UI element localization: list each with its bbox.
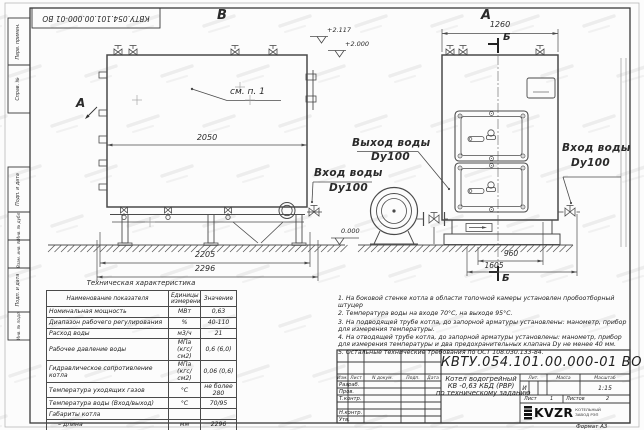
cell: Номинальная мощность [47, 307, 169, 318]
kvzr-sub-line2: ЗАВОД РЭП [575, 413, 601, 418]
technical-notes: 1. На боковой стенке котла в области топ… [338, 295, 634, 358]
note-text: На подводящей трубе котла, до запорной а… [338, 319, 626, 333]
cell: Габариты котла [47, 409, 169, 420]
inlet-water-label-right: Вход воды [562, 143, 631, 154]
tb-sheets-value: 2 [606, 396, 609, 402]
col-header-name: Наименование показателя [47, 291, 169, 307]
table-row: Диапазон рабочего регулирования%40-110 [47, 317, 237, 328]
note-number: 4. [338, 334, 344, 341]
dim-1605: 1605 [466, 262, 522, 270]
margin-stamp-podp-data-1: Подп. и дата [8, 167, 30, 212]
table-row: – длинамм2296 [47, 419, 237, 430]
cell: °С [169, 398, 201, 409]
tech-characteristics-table: Наименование показателя Единицы измерени… [46, 290, 237, 430]
cell: Диапазон рабочего регулирования [47, 317, 169, 328]
cell: мм [169, 419, 201, 430]
cell: Температура уходящих газов [47, 383, 169, 398]
cell: 0,63 [201, 307, 237, 318]
section-mark-B-top: Б [503, 33, 511, 44]
note-text: На боковой стенке котла в области топочн… [338, 295, 614, 309]
cell [201, 409, 237, 420]
cell: не более 280 [201, 383, 237, 398]
tb-header-podp: Подп. [401, 376, 425, 381]
cell: 70/95 [201, 398, 237, 409]
cell: 2296 [201, 419, 237, 430]
kvzr-logo-text: KVZR [534, 405, 573, 420]
dim-2050: 2050 [182, 134, 232, 142]
tb-sheets-label: Листов [566, 396, 585, 402]
note-item: 1. На боковой стенке котла в области топ… [338, 295, 634, 309]
tb-sheet-value: 1 [550, 396, 553, 402]
cell: 0,06 (0,6) [201, 361, 237, 383]
dim-2205: 2205 [183, 251, 227, 259]
cell: МПа (кгс/см2) [169, 361, 201, 383]
table-row: Расход водым3/ч21 [47, 328, 237, 339]
note-text: На отводящей трубе котла, до запорной ар… [338, 334, 622, 348]
cell: Рабочее давление воды [47, 339, 169, 361]
inlet-water-label-left: Вход воды [314, 168, 383, 179]
cell: 21 [201, 328, 237, 339]
tb-header-massa: Масса [547, 376, 580, 381]
document-number: КВТУ.054.101.00.000-01 ВО [441, 355, 630, 370]
kvzr-logo-subtitle: КОТЕЛЬНЫЙ ЗАВОД РЭП [575, 408, 601, 417]
section-mark-B-bottom: Б [502, 274, 510, 285]
tb-lit-value: И [520, 385, 529, 392]
note-number: 1. [338, 295, 344, 302]
col-header-value: Значение [201, 291, 237, 307]
note-item: 4. На отводящей трубе котла, до запорной… [338, 334, 634, 348]
margin-stamp-podp-data-2: Подп. и дата [8, 268, 30, 312]
format-label: Формат А3 [576, 424, 607, 430]
dim-2296: 2296 [183, 265, 227, 273]
table-row: Габариты котла [47, 409, 237, 420]
tb-header-lit: Лит. [520, 376, 547, 381]
note-number: 2. [338, 310, 344, 317]
cell: 40-110 [201, 317, 237, 328]
cell: МПа (кгс/см2) [169, 339, 201, 361]
col-header-units: Единицы измерения [169, 291, 201, 307]
note-number: 3. [338, 319, 344, 326]
tb-staff-prov: Пров. [339, 389, 354, 395]
callout-see-item-1: см. п. 1 [230, 88, 265, 97]
elevation-zero: 0.000 [341, 228, 360, 235]
cell: Температура воды (Вход/выход) [47, 398, 169, 409]
table-header-row: Наименование показателя Единицы измерени… [47, 291, 237, 307]
tb-header-doc: N докум. [364, 376, 401, 381]
cell: Гидравлическое сопротивление котла [47, 361, 169, 383]
tb-sheet-label: Лист [524, 396, 537, 402]
tb-staff-utv: Утв. [339, 417, 350, 423]
tb-staff-razrab: Разраб. [339, 382, 359, 388]
table-row: Гидравлическое сопротивление котлаМПа (к… [47, 361, 237, 383]
view-label-B: В [217, 9, 227, 23]
dim-960: 960 [489, 250, 533, 258]
note-item: 3. На подводящей трубе котла, до запорно… [338, 319, 634, 333]
cell: Расход воды [47, 328, 169, 339]
elevation-2000: +2.000 [345, 41, 369, 48]
dim-1260: 1260 [478, 21, 522, 29]
tb-header-izm: Изм. [337, 376, 348, 381]
margin-stamp-vzam-inv: Взам. инв. № [8, 240, 30, 268]
margin-stamp-inv-dubl: Инв. № дубл. [8, 212, 30, 240]
inlet-water-dn-right: Dy100 [571, 158, 610, 169]
elevation-2117: +2.117 [327, 27, 351, 34]
cell: °С [169, 383, 201, 398]
tb-header-masshtab: Масштаб [580, 376, 630, 381]
cell [169, 409, 201, 420]
boiler-side-view [99, 55, 322, 245]
margin-stamp-perv-primen: Перв. примен. [8, 18, 30, 65]
cell: 0,6 (6,0) [201, 339, 237, 361]
cell: % [169, 317, 201, 328]
section-arrow-label-A: А [76, 97, 85, 110]
table-row: Рабочее давление водыМПа (кгс/см2)0,6 (6… [47, 339, 237, 361]
tb-staff-tkontr: Т.контр. [339, 396, 361, 402]
kvzr-logo: KVZR КОТЕЛЬНЫЙ ЗАВОД РЭП [524, 405, 601, 420]
note-number: 5. [338, 349, 344, 356]
product-name-line3: по техническому заданию [436, 389, 526, 397]
note-text: Температура воды на входе 70°С, на выход… [346, 310, 513, 317]
tech-table-title: Техническая характеристика [46, 280, 236, 287]
drawing-sheet: КВТУ.054.101.00.000-01 ВО Перв. примен. … [0, 0, 644, 430]
outlet-water-dn: Dy100 [371, 152, 410, 163]
cell: – длина [47, 419, 169, 430]
margin-stamp-sprav-no: Справ. № [8, 65, 30, 113]
top-left-stamp-number: КВТУ.054.101.00.000-01 ВО [32, 8, 160, 28]
table-row: Температура воды (Вход/выход)°С70/95 [47, 398, 237, 409]
cell: м3/ч [169, 328, 201, 339]
inlet-water-dn-left: Dy100 [329, 183, 368, 194]
tb-scale-value: 1:15 [580, 385, 630, 392]
note-item: 2. Температура воды на входе 70°С, на вы… [338, 310, 634, 317]
table-row: Номинальная мощностьМВт0,63 [47, 307, 237, 318]
tb-staff-nkontr: Н.контр. [339, 410, 362, 416]
table-row: Температура уходящих газов°Сне более 280 [47, 383, 237, 398]
tb-header-list: Лист [348, 376, 364, 381]
cell: МВт [169, 307, 201, 318]
margin-stamp-inv-podl: Инв. № подл. [8, 312, 30, 340]
kvzr-logo-mark-icon [524, 406, 532, 420]
outlet-water-label: Выход воды [352, 138, 430, 149]
